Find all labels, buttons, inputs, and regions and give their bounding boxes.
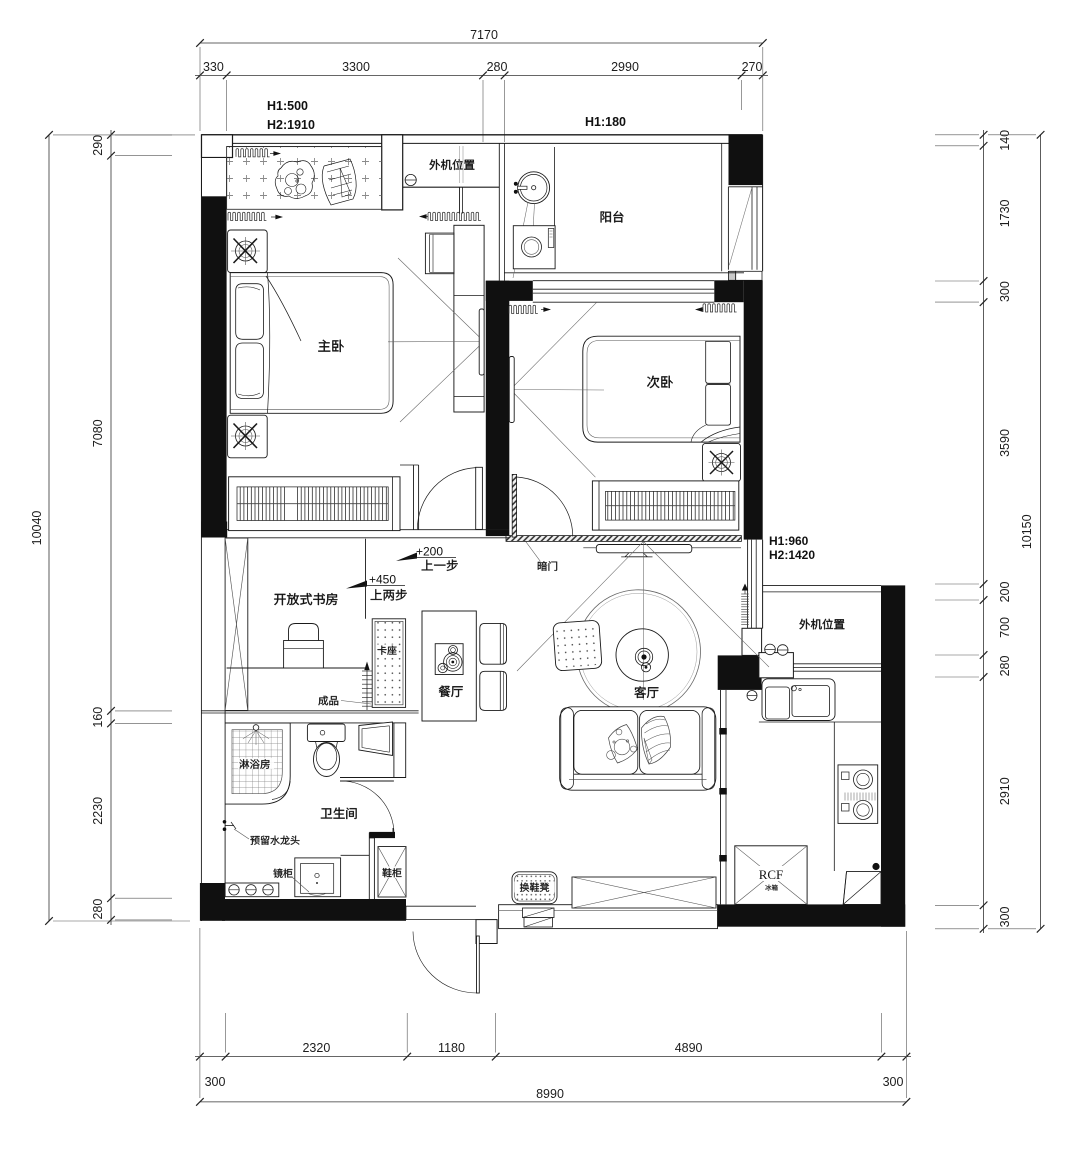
svg-text:10150: 10150: [1020, 514, 1034, 549]
svg-text:2990: 2990: [611, 60, 639, 74]
svg-text:RCF: RCF: [759, 867, 784, 882]
svg-text:300: 300: [883, 1075, 904, 1089]
svg-text:200: 200: [998, 582, 1012, 603]
svg-text:280: 280: [91, 899, 105, 920]
svg-text:280: 280: [998, 656, 1012, 677]
svg-text:10040: 10040: [30, 511, 44, 546]
svg-text:2230: 2230: [91, 797, 105, 825]
svg-text:H2:1910: H2:1910: [267, 118, 315, 132]
svg-text:290: 290: [91, 135, 105, 156]
svg-text:+200: +200: [416, 545, 443, 559]
svg-text:700: 700: [998, 617, 1012, 638]
svg-text:3300: 3300: [342, 60, 370, 74]
svg-text:270: 270: [742, 60, 763, 74]
svg-text:140: 140: [998, 130, 1012, 151]
svg-text:300: 300: [205, 1075, 226, 1089]
svg-text:H1:180: H1:180: [585, 115, 626, 129]
svg-text:4890: 4890: [675, 1041, 703, 1055]
svg-text:330: 330: [203, 60, 224, 74]
svg-text:1730: 1730: [998, 199, 1012, 227]
svg-text:+450: +450: [369, 573, 396, 587]
svg-text:2910: 2910: [998, 777, 1012, 805]
svg-text:8990: 8990: [536, 1087, 564, 1101]
svg-text:3590: 3590: [998, 429, 1012, 457]
svg-text:H1:960: H1:960: [769, 534, 809, 548]
svg-text:H1:500: H1:500: [267, 99, 308, 113]
svg-text:300: 300: [998, 907, 1012, 928]
svg-text:2320: 2320: [302, 1041, 330, 1055]
svg-text:1180: 1180: [438, 1041, 465, 1055]
svg-text:300: 300: [998, 281, 1012, 302]
svg-text:7170: 7170: [470, 28, 498, 42]
svg-text:280: 280: [487, 60, 508, 74]
svg-text:160: 160: [91, 707, 105, 728]
svg-text:7080: 7080: [91, 419, 105, 447]
svg-text:H2:1420: H2:1420: [769, 548, 815, 562]
